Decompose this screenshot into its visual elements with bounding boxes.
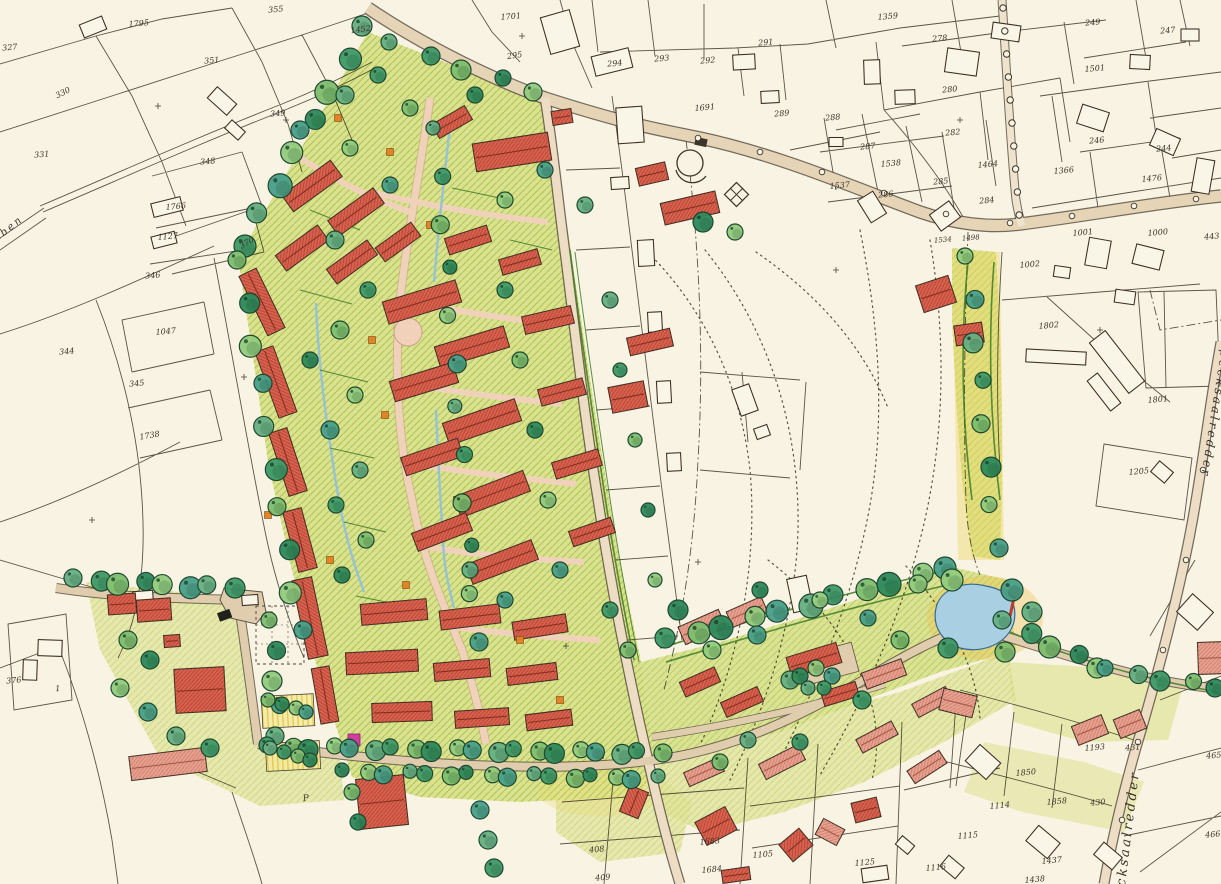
tree [350, 814, 366, 830]
tree [228, 251, 246, 269]
tree [995, 642, 1015, 662]
tree [853, 691, 871, 709]
parcel-label-287: 287 [859, 141, 877, 151]
tree [941, 569, 963, 591]
site-plan-drawing: 3271795351355145233034933134817661127346… [0, 0, 1221, 884]
tree [335, 763, 349, 777]
tree [620, 642, 636, 658]
tree [586, 743, 604, 761]
tree [1097, 660, 1113, 676]
existing-building [864, 60, 881, 85]
tree [382, 177, 398, 193]
tree [537, 162, 553, 178]
tree [426, 121, 440, 135]
tree [402, 100, 418, 116]
garden-shed [517, 637, 524, 644]
tree [613, 363, 627, 377]
tree [431, 216, 449, 234]
tree [442, 767, 460, 785]
tree [201, 739, 219, 757]
parcel-label-1116: 1116 [925, 862, 946, 873]
tree [470, 633, 488, 651]
tree [462, 562, 478, 578]
tree [374, 766, 392, 784]
tree [303, 753, 317, 767]
street-tree-marker [1003, 51, 1009, 57]
tree [524, 83, 542, 101]
tree [752, 582, 768, 598]
tree [64, 569, 82, 587]
tree [877, 572, 901, 596]
tree [261, 693, 275, 707]
parcel-label-346: 346 [145, 270, 161, 280]
tree [990, 539, 1008, 557]
plan-building [107, 593, 136, 615]
tree [505, 741, 521, 757]
parcel-label-1047: 1047 [155, 326, 177, 337]
tree [167, 727, 185, 745]
parcel-label-1850: 1850 [1015, 767, 1036, 778]
tree [1150, 671, 1170, 691]
existing-building [611, 176, 630, 189]
garden-shed [327, 557, 334, 564]
plan-building [164, 634, 181, 647]
tree [340, 739, 358, 757]
parcel-label-349: 349 [270, 108, 286, 118]
tree [467, 87, 483, 103]
parcel-label-348: 348 [200, 156, 216, 166]
parcel-label-1538: 1538 [880, 158, 901, 169]
tree [465, 538, 479, 552]
existing-building [667, 453, 682, 472]
tree [577, 197, 593, 213]
parcel-label-1115: 1115 [957, 830, 978, 841]
tree [352, 462, 368, 478]
parcel-label-1464: 1464 [977, 159, 998, 170]
tree [141, 651, 159, 669]
tree [268, 642, 286, 660]
tree [688, 622, 710, 644]
parcel-label-1105: 1105 [752, 849, 773, 860]
tree [552, 562, 568, 578]
tree [748, 626, 766, 644]
parcel-label-1701: 1701 [500, 11, 521, 22]
tree [261, 612, 277, 628]
parcel-label-376: 376 [6, 675, 22, 685]
parcel-label-465: 465 [1205, 750, 1221, 760]
tree [422, 47, 440, 65]
parcel-label-1801: 1801 [1147, 394, 1168, 405]
tree [334, 567, 350, 583]
tree [622, 771, 640, 789]
tree [1039, 636, 1061, 658]
tree [299, 705, 313, 719]
tree [709, 616, 733, 640]
survey-point [695, 135, 701, 141]
plan-building [454, 708, 509, 729]
tree [247, 203, 267, 223]
tree [254, 374, 272, 392]
tree [1022, 602, 1042, 622]
parcel-label-1766: 1766 [165, 201, 186, 212]
tree [485, 859, 503, 877]
parcel-label-288: 288 [824, 112, 841, 122]
parcel-label-294: 294 [606, 58, 623, 68]
survey-point [757, 149, 763, 155]
tree [139, 703, 157, 721]
parcel-label-292: 292 [699, 55, 716, 65]
existing-building [829, 138, 843, 147]
parcel-label-291: 291 [757, 37, 774, 47]
tree [641, 503, 655, 517]
survey-point [819, 169, 825, 175]
tree [693, 212, 713, 232]
street-tree-marker [1000, 5, 1006, 11]
tree [745, 606, 765, 626]
tree [440, 307, 456, 323]
tree [339, 48, 361, 70]
tree [360, 282, 376, 298]
tree [808, 660, 824, 676]
tree [443, 260, 457, 274]
parcel-label-244: 244 [1155, 143, 1172, 153]
garden-shed [382, 412, 389, 419]
parcel-label-1002: 1002 [1019, 259, 1040, 270]
tree [766, 600, 788, 622]
tree [280, 540, 300, 560]
street-tree-marker [1007, 97, 1013, 103]
parcel-label-408: 408 [588, 844, 605, 854]
parcel-label-282: 282 [944, 127, 961, 137]
tree [909, 575, 927, 593]
tree [497, 192, 513, 208]
tree [817, 681, 831, 695]
parcel-label-280: 280 [941, 84, 958, 94]
tree [268, 174, 292, 198]
tree [1022, 624, 1042, 644]
tree [628, 433, 642, 447]
parcel-label-355: 355 [268, 4, 284, 14]
tree [240, 293, 260, 313]
tree [263, 741, 277, 755]
parcel-label-249: 249 [1084, 17, 1101, 27]
parcel-label-327: 327 [2, 42, 19, 52]
tree [381, 34, 397, 50]
tree [583, 768, 597, 782]
tree [1206, 679, 1221, 697]
parcel-label-246: 246 [1088, 135, 1105, 145]
tree [370, 67, 386, 83]
tree [703, 641, 721, 659]
tree [456, 447, 472, 463]
tree [957, 248, 973, 264]
parcel-label-331: 331 [34, 149, 50, 159]
tree [812, 592, 828, 608]
tree [479, 831, 497, 849]
parcel-label-1537: 1537 [829, 180, 851, 191]
parcel-label-1501: 1501 [1084, 63, 1105, 74]
tree [740, 732, 756, 748]
tree [1070, 646, 1088, 664]
parcel-label-1000: 1000 [1147, 227, 1168, 238]
parcel-label-1691: 1691 [694, 102, 715, 113]
tree [344, 784, 360, 800]
tree [712, 754, 728, 770]
parcel-label-409: 409 [594, 872, 611, 882]
tree [265, 459, 287, 481]
tree [602, 602, 618, 618]
parcel-label-1: 1 [55, 684, 61, 693]
tree [654, 744, 672, 762]
parcel-label-351: 351 [204, 55, 220, 65]
parcel-label-431: 431 [1124, 742, 1141, 752]
tree [417, 766, 433, 782]
street-tree-marker [1014, 189, 1020, 195]
existing-building [656, 381, 671, 404]
tree [527, 422, 543, 438]
street-tree-marker [1002, 28, 1008, 34]
tree [315, 80, 339, 104]
parcel-label-1193: 1193 [1084, 742, 1105, 753]
parcel-label-293: 293 [653, 53, 670, 63]
tree [512, 352, 528, 368]
tree [239, 335, 261, 357]
tree [963, 333, 983, 353]
tree [602, 292, 618, 308]
garden-shed [557, 697, 564, 704]
tree [358, 532, 374, 548]
plan-building [174, 667, 226, 714]
parcel-label-247: 247 [1159, 25, 1177, 35]
plan-building [551, 109, 573, 126]
parcel-label-1684: 1684 [701, 864, 722, 875]
tree [648, 573, 662, 587]
tree [403, 764, 417, 778]
tree [198, 576, 216, 594]
tree [294, 621, 312, 639]
tree [268, 498, 286, 516]
street-tree-marker [1011, 143, 1017, 149]
parcel-label-443: 443 [1203, 231, 1220, 241]
tree [856, 579, 878, 601]
existing-building [1181, 29, 1199, 41]
road-label-1534: 1534 [934, 235, 952, 245]
tree [448, 355, 466, 373]
plan-building [1197, 642, 1221, 675]
tree [727, 224, 743, 240]
existing-building [616, 106, 644, 144]
tree [277, 745, 291, 759]
tree [540, 492, 556, 508]
parcel-label-1476: 1476 [1141, 173, 1162, 184]
tree [981, 457, 1001, 477]
parcel-label-1114: 1114 [989, 800, 1010, 811]
tree [544, 743, 564, 763]
tree [461, 586, 477, 602]
existing-building [38, 640, 63, 657]
tree [336, 86, 354, 104]
tree [331, 321, 349, 339]
tree [342, 140, 358, 156]
existing-building [1114, 289, 1136, 305]
tree [628, 743, 644, 759]
parcel-label-285: 285 [932, 176, 949, 186]
parcel-label-289: 289 [773, 108, 790, 118]
existing-building [647, 312, 662, 333]
tree [801, 681, 815, 695]
existing-building [637, 240, 654, 267]
tree [435, 168, 451, 184]
survey-point [1069, 213, 1075, 219]
existing-building [1053, 265, 1070, 278]
survey-point [1193, 196, 1199, 202]
tree [321, 421, 339, 439]
street-tree-marker [1005, 74, 1011, 80]
tree [152, 575, 172, 595]
tree [448, 399, 462, 413]
parcel-label-286: 286 [877, 189, 894, 199]
existing-building [1085, 237, 1112, 268]
tree [981, 497, 997, 513]
parcel-label-466: 466 [1204, 829, 1221, 839]
garden-shed [387, 149, 394, 156]
tree [655, 628, 675, 648]
tree [1130, 666, 1148, 684]
existing-building [242, 594, 259, 605]
tree [326, 231, 344, 249]
tree [281, 142, 303, 164]
tree [860, 610, 876, 626]
tree [1186, 674, 1202, 690]
tree [275, 697, 289, 711]
tree [382, 739, 398, 755]
tree [972, 415, 990, 433]
tree [566, 769, 584, 787]
existing-building [1130, 54, 1151, 69]
tree [291, 121, 309, 139]
tree [347, 387, 363, 403]
tree [668, 600, 688, 620]
parcel-label-345: 345 [129, 378, 145, 388]
garden-shed [403, 582, 410, 589]
tree [328, 497, 344, 513]
parcel-label-1205: 1205 [1128, 466, 1149, 477]
parcel-label-1683: 1683 [699, 836, 720, 847]
survey-point [1183, 557, 1189, 563]
survey-point [1131, 203, 1137, 209]
plan-building [345, 649, 418, 675]
turning-circle [677, 150, 703, 176]
tree [254, 416, 274, 436]
parcel-label-278: 278 [931, 33, 948, 43]
parcel-label-344: 344 [59, 346, 75, 356]
survey-point [1007, 220, 1013, 226]
tree [463, 741, 481, 759]
parcel-label-284: 284 [978, 195, 995, 205]
tree [651, 769, 665, 783]
tree [527, 767, 541, 781]
tree [225, 578, 245, 598]
parcel-label-1802: 1802 [1038, 320, 1059, 331]
tree [1001, 579, 1023, 601]
tree [262, 671, 282, 691]
existing-building [895, 90, 915, 105]
tree [107, 573, 129, 595]
survey-point [1160, 647, 1166, 653]
parcel-label-1437: 1437 [1041, 855, 1063, 866]
tree [938, 638, 958, 658]
tree [966, 290, 984, 308]
existing-building [944, 48, 979, 76]
plan-building [136, 598, 171, 622]
tree [471, 801, 489, 819]
plan-building [372, 701, 433, 722]
parcel-label-430: 430 [1089, 797, 1106, 807]
tree [495, 70, 511, 86]
parcel-label-1858: 1858 [1046, 796, 1067, 807]
tree [497, 592, 513, 608]
existing-building [733, 54, 756, 70]
tree [459, 765, 473, 779]
parcel-label-1795: 1795 [128, 18, 149, 29]
tree [279, 582, 301, 604]
parcel-label-1125: 1125 [854, 857, 875, 868]
existing-building [761, 91, 780, 104]
parcel-label-1438: 1438 [1024, 874, 1045, 884]
tree [497, 282, 513, 298]
tree [421, 742, 441, 762]
existing-building [23, 660, 38, 680]
existing-building [1026, 349, 1087, 365]
parcel-label-1366: 1366 [1053, 165, 1074, 176]
garden-shed [335, 115, 342, 122]
parcel-label-1127: 1127 [157, 231, 179, 242]
parcel-label-1359: 1359 [877, 11, 898, 22]
garden-shed [369, 337, 376, 344]
existing-building [861, 865, 889, 882]
tree [541, 768, 557, 784]
site-plan-map: 3271795351355145233034933134817661127346… [0, 0, 1221, 884]
tree [302, 352, 318, 368]
tree [111, 679, 129, 697]
tree [792, 734, 808, 750]
street-tree-marker [1016, 212, 1022, 218]
tree [975, 372, 991, 388]
tree [119, 631, 137, 649]
survey-point [943, 211, 949, 217]
tree [993, 611, 1011, 629]
street-tree-marker [1009, 120, 1015, 126]
tree [891, 631, 909, 649]
street-tree-marker [1012, 166, 1018, 172]
tree [453, 494, 471, 512]
tree [451, 60, 471, 80]
road-label-1498: 1498 [962, 233, 981, 243]
tree [498, 768, 516, 786]
parcel-label-1001: 1001 [1072, 227, 1093, 238]
